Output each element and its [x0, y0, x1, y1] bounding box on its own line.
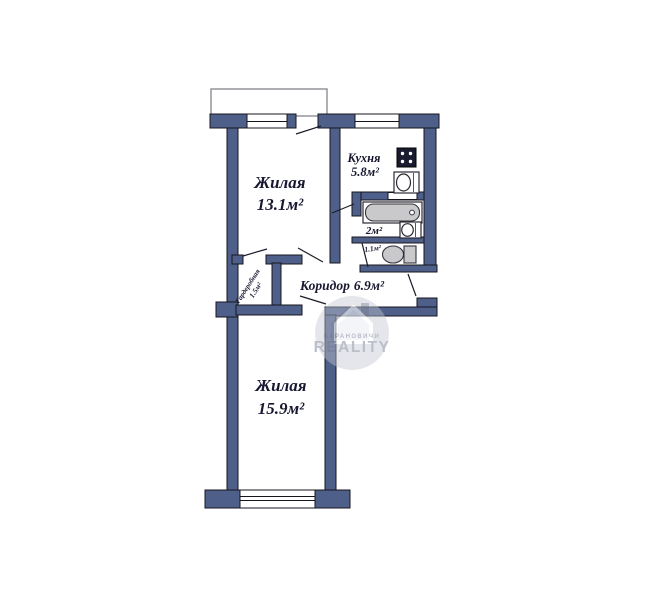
room-toilet: 1.1м² [364, 243, 383, 254]
bathtub-icon [363, 202, 422, 223]
wall-top-center-block [318, 114, 355, 128]
stove-icon [397, 148, 416, 167]
wall-wardrobe-right [272, 263, 281, 305]
door-living-bottom [300, 296, 326, 304]
room-living-bottom: Жилая 15.9м² [254, 376, 306, 418]
corridor-label: Коридор6.9м² [299, 278, 385, 293]
wall-livingtop-bottom-b [266, 255, 302, 264]
wall-livingtop-right [330, 128, 340, 263]
living-top-area: 13.1м² [257, 195, 304, 214]
wall-livingtop-bottom-a [232, 255, 243, 264]
wall-right [424, 128, 436, 272]
wall-toilet-bottom [360, 265, 437, 272]
room-kitchen: Кухня 5.8м² [347, 151, 382, 179]
wall-top-right-block [399, 114, 439, 128]
kitchen-sink-icon [394, 172, 419, 193]
wall-bottom-left-block [205, 490, 240, 508]
door-balcony [296, 126, 321, 134]
kitchen-area: 5.8м² [351, 165, 379, 179]
living-bottom-name: Жилая [254, 376, 306, 395]
living-bottom-area: 15.9м² [258, 399, 305, 418]
bathroom-area: 2м² [365, 225, 383, 237]
living-top-name: Жилая [253, 173, 305, 192]
wall-bottom-right-block [315, 490, 350, 508]
wall-top-mid-block [287, 114, 296, 128]
toilet-area: 1.1м² [364, 243, 383, 254]
room-living-top: Жилая 13.1м² [253, 173, 305, 214]
bathroom-sink-icon [400, 222, 421, 238]
floor-plan: Жилая 13.1м² Кухня 5.8м² 2м² 1.1м² Корид… [0, 0, 655, 613]
room-corridor: Коридор6.9м² [299, 278, 385, 293]
room-bathroom: 2м² [365, 225, 383, 237]
watermark-brand-text: REALITY [314, 339, 391, 356]
toilet-icon [383, 246, 417, 263]
kitchen-name: Кухня [347, 151, 382, 165]
balcony-outline [211, 89, 327, 116]
door-entrance [408, 274, 416, 296]
floor-plan-drawing: Жилая 13.1м² Кухня 5.8м² 2м² 1.1м² Корид… [0, 0, 655, 613]
room-labels: Жилая 13.1м² Кухня 5.8м² 2м² 1.1м² Корид… [233, 151, 385, 418]
room-wardrobe: Гардеробная 1.5м² [233, 267, 269, 310]
door-wardrobe [243, 249, 267, 256]
window-living-bottom [240, 490, 315, 508]
wall-wardrobe-bottom [236, 305, 302, 315]
wall-left-junction-block [216, 302, 238, 317]
wall-top-left-block [210, 114, 247, 128]
